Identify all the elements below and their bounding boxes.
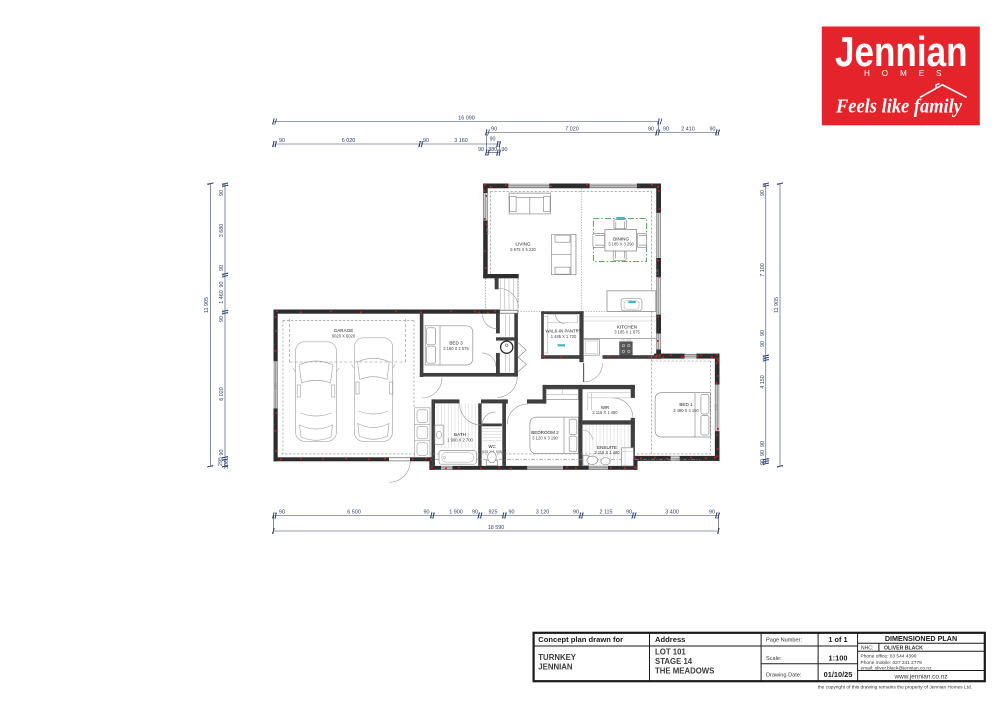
svg-text:90: 90	[424, 509, 430, 515]
svg-text:90: 90	[626, 509, 632, 515]
svg-text:1 485 X 1 720: 1 485 X 1 720	[551, 334, 577, 339]
svg-text:925: 925	[489, 509, 498, 515]
svg-text:1.50: 1.50	[656, 269, 660, 275]
svg-text:Phone mobile: 027 241 2779: Phone mobile: 027 241 2779	[861, 660, 923, 666]
svg-text:3 400: 3 400	[665, 509, 679, 515]
svg-text:90: 90	[502, 147, 508, 153]
svg-text:TURNKEY: TURNKEY	[538, 653, 576, 662]
svg-text:Drawing Date:: Drawing Date:	[766, 673, 802, 679]
svg-text:NHC:: NHC:	[861, 646, 873, 652]
svg-text:WIR: WIR	[601, 405, 609, 410]
svg-text:90: 90	[509, 509, 515, 515]
svg-text:1 900 X 2 700: 1 900 X 2 700	[447, 437, 473, 442]
svg-text:1 of 1: 1 of 1	[828, 635, 847, 644]
svg-text:16 090: 16 090	[458, 116, 475, 122]
svg-text:Feels like family: Feels like family	[835, 96, 962, 118]
svg-text:Phone office: 03 544 4390: Phone office: 03 544 4390	[861, 654, 917, 660]
svg-text:90: 90	[573, 509, 579, 515]
svg-text:90: 90	[490, 137, 496, 143]
svg-text:2 115 X 1 480: 2 115 X 1 480	[592, 410, 618, 415]
svg-text:2 115 X 1 480: 2 115 X 1 480	[594, 450, 620, 455]
svg-text:1.20: 1.20	[486, 228, 490, 234]
svg-text:90: 90	[423, 138, 429, 144]
svg-text:90: 90	[760, 459, 766, 465]
svg-text:BED 3: BED 3	[449, 340, 463, 345]
svg-text:DIMENSIONED PLAN: DIMENSIONED PLAN	[885, 634, 957, 643]
svg-text:GARAGE: GARAGE	[334, 328, 354, 333]
svg-text:STAGE 14: STAGE 14	[655, 657, 693, 666]
svg-text:306: 306	[224, 460, 230, 469]
svg-text:90: 90	[709, 509, 715, 515]
svg-text:3 185 X 1 875: 3 185 X 1 875	[614, 330, 640, 335]
svg-text:WC: WC	[488, 444, 495, 449]
svg-text:BEDROOM 2: BEDROOM 2	[531, 430, 559, 435]
svg-text:2 410: 2 410	[681, 127, 695, 133]
svg-text:380: 380	[488, 147, 497, 153]
svg-text:6 500: 6 500	[347, 509, 361, 515]
svg-text:90: 90	[760, 450, 766, 456]
svg-text:3 120: 3 120	[536, 509, 550, 515]
svg-text:LOT 101: LOT 101	[655, 648, 686, 657]
svg-text:7 020: 7 020	[565, 127, 579, 133]
svg-text:Page Number:: Page Number:	[766, 638, 803, 644]
svg-text:90: 90	[279, 138, 285, 144]
svg-text:OLIVER BLACK: OLIVER BLACK	[884, 646, 923, 652]
svg-text:11 905: 11 905	[774, 297, 780, 313]
svg-text:THE MEADOWS: THE MEADOWS	[655, 667, 714, 676]
svg-text:email: oliver.black@jennian.co: email: oliver.black@jennian.co.nz	[861, 666, 933, 672]
svg-text:6 020: 6 020	[219, 387, 225, 401]
svg-text:01/10/25: 01/10/25	[824, 670, 853, 679]
svg-text:18 590: 18 590	[488, 525, 505, 531]
svg-text:DINING: DINING	[613, 236, 630, 241]
svg-text:90: 90	[760, 330, 766, 336]
svg-text:KITCHEN: KITCHEN	[617, 324, 637, 329]
svg-text:3 160: 3 160	[454, 138, 468, 144]
svg-text:6020 X 6020: 6020 X 6020	[332, 333, 356, 338]
svg-text:LIVING: LIVING	[515, 242, 530, 247]
svg-text:90: 90	[478, 147, 484, 153]
svg-text:4 150: 4 150	[760, 375, 766, 389]
svg-text:90: 90	[648, 127, 654, 133]
svg-text:www.jennian.co.nz: www.jennian.co.nz	[894, 673, 948, 680]
svg-text:90: 90	[219, 450, 225, 456]
svg-text:3 185 X 3 290: 3 185 X 3 290	[608, 242, 634, 247]
svg-text:Concept plan drawn for: Concept plan drawn for	[538, 635, 623, 644]
svg-text:3 180 X 2 575: 3 180 X 2 575	[443, 346, 469, 351]
svg-text:Scale:: Scale:	[766, 656, 782, 662]
svg-text:ENSUITE: ENSUITE	[597, 445, 617, 450]
svg-text:the copyright of this drawing: the copyright of this drawing remains th…	[818, 685, 972, 691]
svg-text:JENNIAN: JENNIAN	[538, 663, 573, 672]
svg-text:3 120 X 3 190: 3 120 X 3 190	[532, 436, 558, 441]
svg-text:1 460: 1 460	[219, 290, 225, 304]
svg-text:90: 90	[219, 265, 225, 271]
svg-text:6 020: 6 020	[342, 138, 356, 144]
svg-text:BED 1: BED 1	[679, 402, 693, 407]
svg-text:90: 90	[760, 341, 766, 347]
svg-text:11 905: 11 905	[204, 297, 210, 313]
svg-text:1.60: 1.60	[714, 404, 718, 410]
svg-text:90: 90	[491, 127, 497, 133]
svg-text:600 HOB: 600 HOB	[621, 338, 632, 342]
svg-text:7 100: 7 100	[760, 263, 766, 277]
svg-text:90: 90	[219, 190, 225, 196]
svg-text:1 900: 1 900	[449, 509, 463, 515]
svg-text:90: 90	[760, 190, 766, 196]
svg-text:5 975 X 5 230: 5 975 X 5 230	[510, 247, 536, 252]
svg-text:90: 90	[760, 441, 766, 447]
svg-text:90: 90	[710, 127, 716, 133]
svg-text:1:100: 1:100	[829, 654, 848, 663]
svg-text:90: 90	[219, 282, 225, 288]
svg-text:90: 90	[219, 316, 225, 322]
svg-text:90: 90	[279, 509, 285, 515]
svg-text:2 115: 2 115	[599, 509, 612, 515]
svg-text:3 680: 3 680	[219, 224, 225, 238]
svg-text:3 480 X 4 150: 3 480 X 4 150	[673, 408, 699, 413]
svg-text:90: 90	[472, 509, 478, 515]
svg-text:90: 90	[663, 127, 669, 133]
svg-text:1.50: 1.50	[273, 383, 277, 389]
svg-text:Address: Address	[655, 635, 685, 644]
svg-text:BATH: BATH	[454, 432, 466, 437]
